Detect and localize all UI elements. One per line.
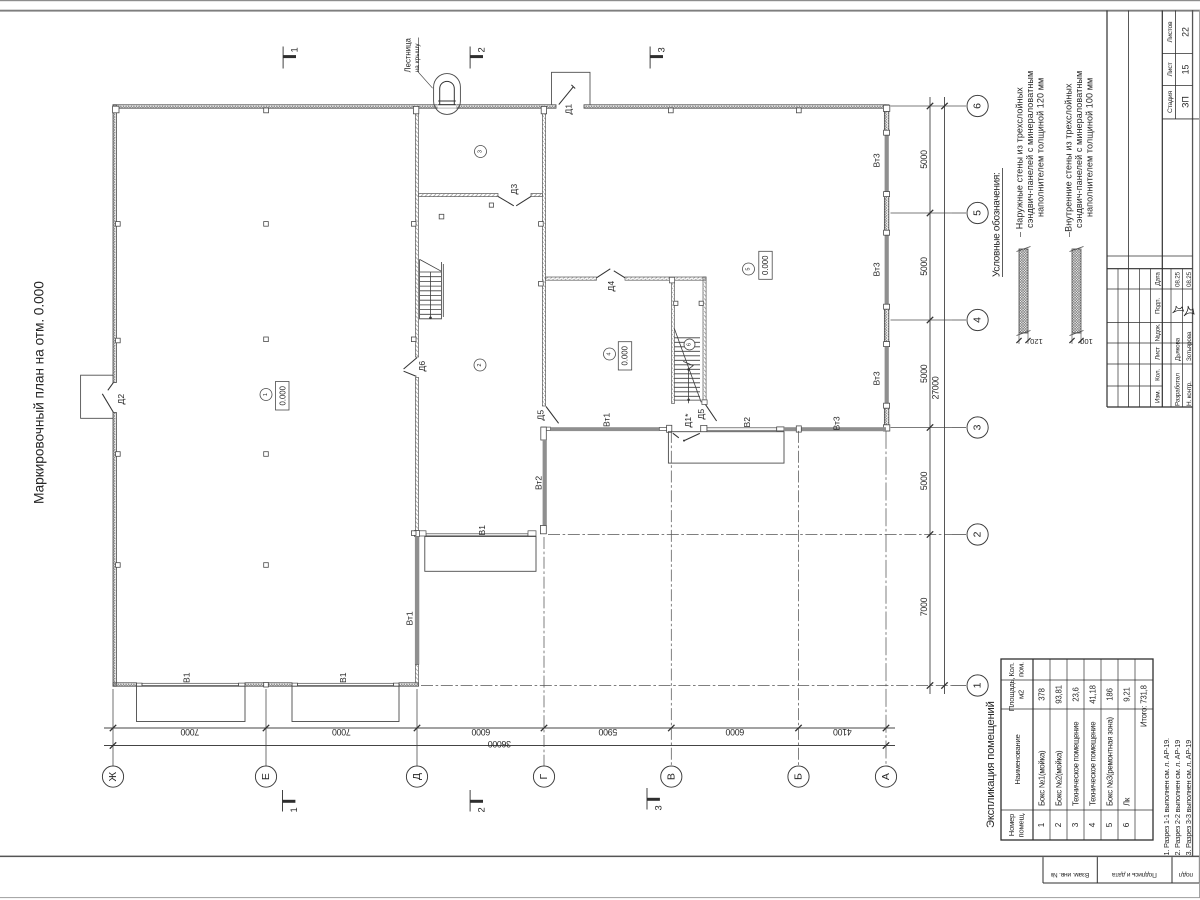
svg-text:Ж: Ж bbox=[107, 771, 119, 781]
svg-text:Изм.: Изм. bbox=[1155, 390, 1162, 403]
svg-text:6: 6 bbox=[1122, 822, 1131, 827]
svg-text:Лист: Лист bbox=[1167, 62, 1174, 76]
svg-text:4: 4 bbox=[1088, 822, 1097, 827]
svg-text:1: 1 bbox=[288, 807, 299, 812]
svg-text:0.000: 0.000 bbox=[621, 345, 630, 365]
svg-text:А: А bbox=[880, 773, 892, 780]
svg-text:4: 4 bbox=[607, 352, 613, 355]
svg-text:Вт3: Вт3 bbox=[832, 416, 842, 430]
svg-text:1: 1 bbox=[972, 682, 984, 688]
svg-text:2: 2 bbox=[972, 531, 984, 537]
svg-text:Зотьярова: Зотьярова bbox=[1186, 331, 1193, 361]
svg-text:Д: Д bbox=[411, 773, 423, 780]
svg-text:100: 100 bbox=[1080, 337, 1093, 346]
svg-text:Н. контр.: Н. контр. bbox=[1186, 381, 1193, 406]
svg-text:6: 6 bbox=[687, 343, 693, 346]
svg-text:186: 186 bbox=[1106, 688, 1115, 700]
svg-text:В: В bbox=[665, 773, 677, 780]
svg-text:2: 2 bbox=[476, 807, 487, 812]
svg-text:5000: 5000 bbox=[919, 364, 929, 383]
svg-text:Вт3: Вт3 bbox=[872, 153, 882, 167]
svg-text:Б: Б bbox=[793, 773, 805, 780]
svg-text:Взам. инв. №: Взам. инв. № bbox=[1051, 871, 1090, 878]
svg-text:2: 2 bbox=[1054, 822, 1063, 827]
svg-text:Д3: Д3 bbox=[509, 184, 519, 195]
svg-text:Д5: Д5 bbox=[536, 410, 546, 421]
svg-text:23,6: 23,6 bbox=[1072, 687, 1081, 701]
svg-text:6000: 6000 bbox=[725, 727, 744, 737]
svg-text:Маркировочный план на отм. 0.0: Маркировочный план на отм. 0.000 bbox=[32, 281, 47, 504]
svg-text:4: 4 bbox=[972, 317, 984, 323]
svg-text:5000: 5000 bbox=[919, 471, 929, 490]
svg-text:7000: 7000 bbox=[919, 597, 929, 616]
svg-text:Разработал: Разработал bbox=[1174, 373, 1182, 406]
svg-text:наполнителем толщиной 120 мм: наполнителем толщиной 120 мм bbox=[1036, 78, 1046, 217]
svg-text:5: 5 bbox=[1105, 822, 1114, 827]
svg-text:Вт3: Вт3 bbox=[872, 262, 882, 276]
svg-text:м2: м2 bbox=[1017, 690, 1026, 699]
svg-text:0.000: 0.000 bbox=[279, 385, 288, 405]
svg-text:подл: подл bbox=[1179, 871, 1193, 878]
svg-text:Бокс №2(мойка): Бокс №2(мойка) bbox=[1055, 750, 1064, 806]
svg-text:на крышу: на крышу bbox=[414, 43, 421, 73]
svg-text:помещ.: помещ. bbox=[1017, 812, 1026, 837]
svg-text:3: 3 bbox=[478, 150, 484, 153]
svg-text:Вт3: Вт3 bbox=[872, 371, 882, 385]
svg-text:41,18: 41,18 bbox=[1089, 685, 1098, 704]
svg-text:Е: Е bbox=[260, 773, 272, 780]
svg-text:120: 120 bbox=[1030, 337, 1043, 346]
svg-text:Дьякова: Дьякова bbox=[1175, 337, 1182, 361]
svg-text:5900: 5900 bbox=[598, 727, 617, 737]
svg-text:сэндвич-панелей с минераловатн: сэндвич-панелей с минераловатным bbox=[1074, 71, 1084, 228]
svg-text:Г: Г bbox=[538, 773, 550, 779]
svg-text:Листов: Листов bbox=[1167, 21, 1174, 42]
svg-text:731,8: 731,8 bbox=[1140, 685, 1149, 704]
svg-text:6000: 6000 bbox=[471, 727, 490, 737]
svg-text:Д6: Д6 bbox=[417, 361, 427, 372]
svg-text:36000: 36000 bbox=[488, 739, 511, 749]
svg-text:0.000: 0.000 bbox=[761, 255, 770, 275]
svg-text:15: 15 bbox=[1181, 65, 1191, 75]
svg-text:3. Разрез 3-3 выполнен см. л.: 3. Разрез 3-3 выполнен см. л. АР-19 bbox=[1184, 740, 1193, 856]
svg-text:Подп.: Подп. bbox=[1155, 298, 1162, 314]
svg-text:– Наружные стены из трехслойны: – Наружные стены из трехслойных bbox=[1015, 87, 1025, 237]
svg-text:93,81: 93,81 bbox=[1055, 685, 1064, 704]
svg-text:5000: 5000 bbox=[919, 257, 929, 276]
svg-text:В2: В2 bbox=[742, 417, 752, 428]
svg-text:Техническое помещение: Техническое помещение bbox=[1072, 722, 1081, 806]
svg-text:Номер: Номер bbox=[1007, 814, 1016, 836]
svg-text:5: 5 bbox=[746, 267, 752, 270]
svg-text:Лист: Лист bbox=[1155, 347, 1162, 360]
svg-text:Площадь,: Площадь, bbox=[1007, 678, 1016, 712]
svg-text:№док.: №док. bbox=[1155, 323, 1162, 341]
svg-text:Д1*: Д1* bbox=[683, 413, 693, 428]
svg-text:сэндвич-панелей с минераловатн: сэндвич-панелей с минераловатным bbox=[1025, 71, 1035, 228]
svg-text:В1: В1 bbox=[338, 672, 348, 683]
svg-text:Д1: Д1 bbox=[564, 104, 574, 115]
svg-text:Наименование: Наименование bbox=[1013, 734, 1022, 784]
svg-text:3: 3 bbox=[653, 805, 664, 810]
svg-text:5000: 5000 bbox=[919, 150, 929, 169]
svg-text:22: 22 bbox=[1181, 27, 1191, 37]
svg-text:3: 3 bbox=[1071, 822, 1080, 827]
svg-text:Лк: Лк bbox=[1123, 797, 1132, 806]
svg-text:В1: В1 bbox=[182, 672, 192, 683]
svg-text:2: 2 bbox=[477, 363, 483, 366]
svg-text:Условные обозначения:: Условные обозначения: bbox=[991, 172, 1003, 277]
svg-text:6: 6 bbox=[972, 103, 984, 109]
svg-text:Вт2: Вт2 bbox=[534, 476, 544, 490]
svg-text:378: 378 bbox=[1038, 688, 1047, 700]
svg-text:7000: 7000 bbox=[332, 727, 351, 737]
svg-text:1: 1 bbox=[289, 47, 300, 52]
svg-text:Вт1: Вт1 bbox=[602, 413, 612, 427]
svg-text:3: 3 bbox=[656, 47, 667, 52]
svg-text:В1: В1 bbox=[477, 525, 487, 536]
svg-text:ЗП: ЗП bbox=[1181, 96, 1191, 108]
svg-text:Техническое помещение: Техническое помещение bbox=[1089, 722, 1098, 806]
svg-text:2: 2 bbox=[476, 47, 487, 52]
svg-text:Кол.: Кол. bbox=[1155, 369, 1162, 381]
svg-text:3: 3 bbox=[972, 424, 984, 430]
svg-text:Д5: Д5 bbox=[696, 409, 706, 420]
svg-text:5: 5 bbox=[972, 210, 984, 216]
svg-text:08.25: 08.25 bbox=[1175, 271, 1182, 287]
svg-text:Экспликация помещений: Экспликация помещений bbox=[985, 701, 997, 828]
svg-text:4100: 4100 bbox=[833, 727, 852, 737]
svg-text:1. Разрез 1-1 выполнен см. л.: 1. Разрез 1-1 выполнен см. л. АР-19. bbox=[1162, 738, 1171, 855]
svg-text:1: 1 bbox=[1037, 822, 1046, 827]
svg-text:Вт1: Вт1 bbox=[405, 611, 415, 625]
svg-text:Подпись и дата: Подпись и дата bbox=[1112, 871, 1157, 878]
svg-text:Лестница: Лестница bbox=[404, 37, 413, 72]
svg-text:9,21: 9,21 bbox=[1123, 687, 1132, 701]
svg-text:2. Разрез 2-2 выполнен см. л.: 2. Разрез 2-2 выполнен см. л. АР-19 bbox=[1173, 740, 1182, 856]
svg-text:Бокс №1(мойка): Бокс №1(мойка) bbox=[1038, 750, 1047, 806]
svg-text:Стадия: Стадия bbox=[1167, 90, 1174, 112]
svg-text:Д2: Д2 bbox=[116, 394, 126, 405]
svg-text:Дата: Дата bbox=[1155, 272, 1162, 286]
svg-text:–Внутренние стены из трехслойн: –Внутренние стены из трехслойных bbox=[1064, 83, 1074, 237]
svg-text:27000: 27000 bbox=[931, 376, 941, 399]
svg-text:7000: 7000 bbox=[180, 727, 199, 737]
svg-text:1: 1 bbox=[263, 393, 269, 396]
svg-text:08.25: 08.25 bbox=[1186, 271, 1193, 287]
svg-text:Бокс №3(ремонтная зона): Бокс №3(ремонтная зона) bbox=[1106, 716, 1115, 806]
svg-text:Итого:: Итого: bbox=[1140, 706, 1149, 727]
svg-text:наполнителем толщиной 100 мм: наполнителем толщиной 100 мм bbox=[1085, 78, 1095, 217]
svg-text:Д4: Д4 bbox=[606, 281, 616, 292]
svg-text:пом.: пом. bbox=[1017, 662, 1026, 677]
svg-text:Кол.: Кол. bbox=[1007, 662, 1016, 676]
